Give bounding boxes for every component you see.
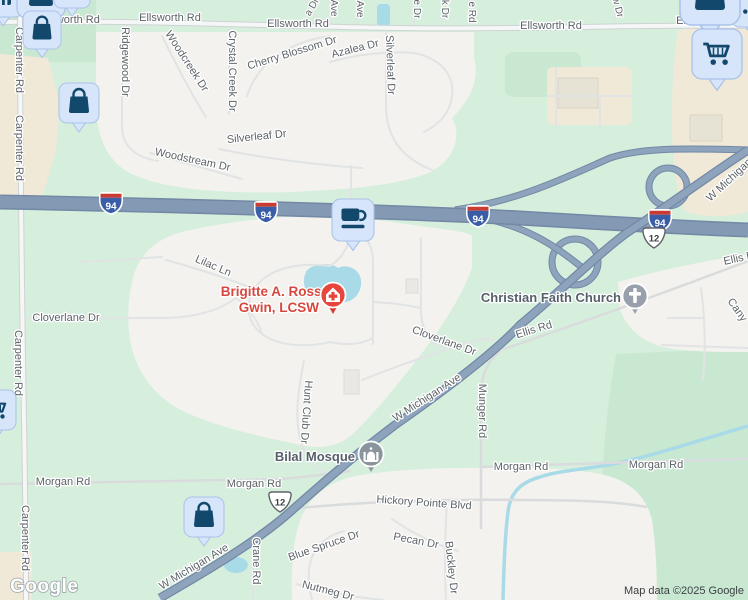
road-label-stub: e Dr bbox=[411, 0, 422, 19]
road-label-ridgewood: Ridgewood Dr bbox=[119, 27, 131, 97]
road-label-morgan: Morgan Rd bbox=[36, 476, 90, 488]
road-label-cloverlane: Cloverlane Dr bbox=[32, 312, 100, 324]
road-label-ellsworth: Ellsworth Rd bbox=[139, 12, 201, 24]
pond-small bbox=[377, 4, 390, 26]
road-label-carpenter: Carpenter Rd bbox=[12, 330, 24, 396]
road-label-munger: Munger Rd bbox=[476, 384, 488, 438]
road-label-ellsworth: Ellsworth Rd bbox=[520, 20, 582, 32]
road-label-ellsworth: Ellsworth Rd bbox=[267, 18, 329, 30]
road-label-morgan: Morgan Rd bbox=[227, 478, 281, 490]
poi-label-brigitte-line1[interactable]: Brigitte A. Ross- bbox=[221, 284, 326, 299]
poi-label-mosque[interactable]: Bilal Mosque bbox=[275, 449, 355, 464]
road-label-stub: Ave bbox=[354, 0, 365, 17]
road-label-crystal-creek: Crystal Creek Dr bbox=[226, 30, 238, 112]
road-label-crane: Crane Rd bbox=[250, 537, 262, 584]
road-label-carpenter: Carpenter Rd bbox=[19, 505, 31, 571]
map-canvas[interactable]: 94 12 bbox=[0, 0, 748, 600]
map-svg[interactable]: 94 12 bbox=[0, 0, 748, 600]
road-label-stub: Ave bbox=[328, 0, 339, 17]
road-label-morgan: Morgan Rd bbox=[494, 461, 548, 473]
road-label-stub: e Rd bbox=[466, 1, 477, 22]
road-label-morgan: Morgan Rd bbox=[629, 459, 683, 471]
storefront-icon bbox=[0, 0, 11, 5]
road-label-stub: k Dr bbox=[439, 0, 450, 19]
shopping-bag-icon bbox=[29, 0, 53, 6]
road-label-carpenter: Carpenter Rd bbox=[13, 115, 25, 181]
map-attribution: Map data ©2025 Google bbox=[624, 585, 744, 597]
road-label-silverleaf: Silverleaf Dr bbox=[383, 35, 397, 96]
poi-label-church[interactable]: Christian Faith Church bbox=[481, 290, 621, 305]
shopping-bag-icon bbox=[695, 0, 725, 10]
google-logo[interactable]: Google bbox=[10, 576, 78, 597]
poi-label-brigitte-line2[interactable]: Gwin, LCSW bbox=[239, 300, 320, 315]
